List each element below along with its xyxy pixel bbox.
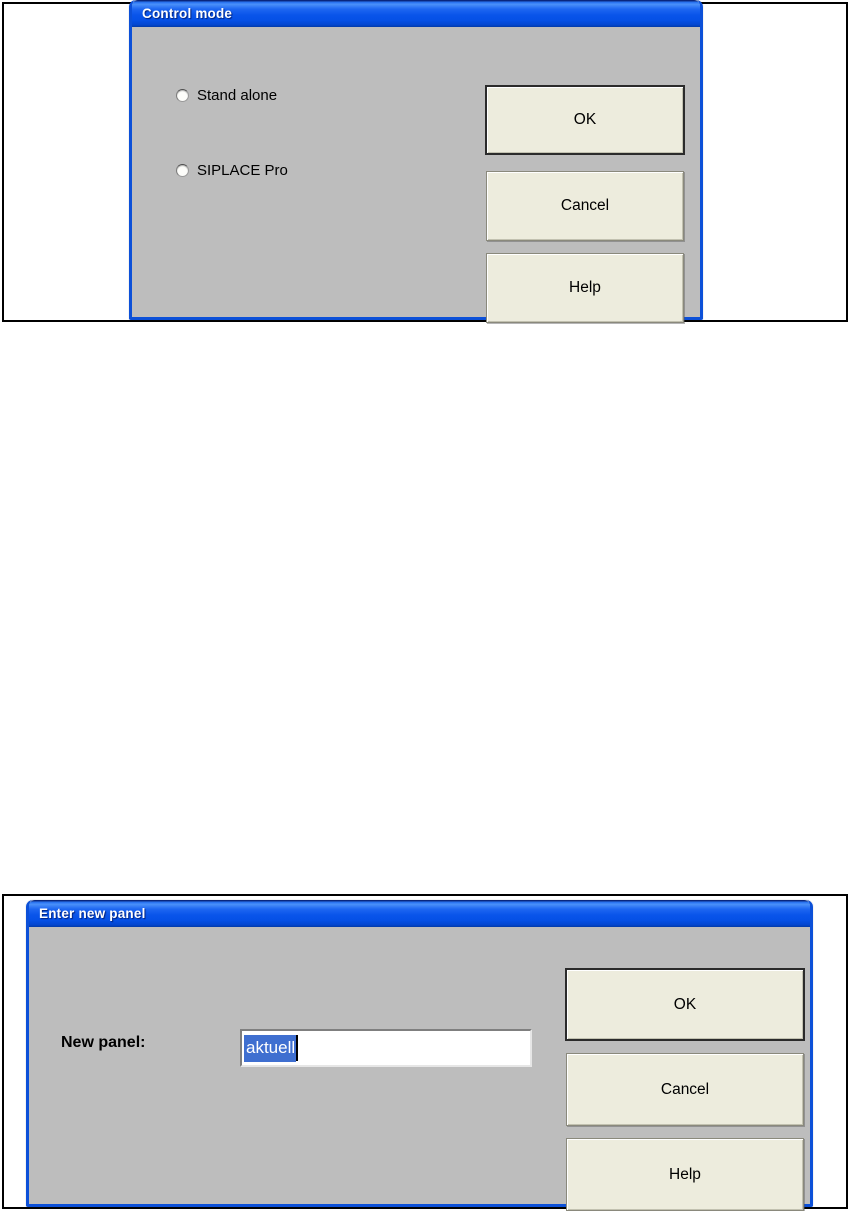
new-panel-input-selected-text: aktuell <box>244 1035 296 1062</box>
radio-icon[interactable] <box>176 89 189 102</box>
cancel-button[interactable]: Cancel <box>566 1053 804 1126</box>
ok-button[interactable]: OK <box>565 968 805 1041</box>
new-panel-label: New panel: <box>61 1034 145 1052</box>
radio-label-stand-alone[interactable]: Stand alone <box>197 87 277 104</box>
control-mode-dialog: Control mode Stand alone SIPLACE Pro OK … <box>129 0 703 320</box>
control-mode-titlebar[interactable]: Control mode <box>132 0 700 27</box>
radio-option-siplace-pro[interactable]: SIPLACE Pro <box>176 162 288 179</box>
help-button[interactable]: Help <box>486 253 684 323</box>
enter-new-panel-dialog: Enter new panel New panel: aktuell OK Ca… <box>26 900 813 1207</box>
page-background: Control mode Stand alone SIPLACE Pro OK … <box>0 0 850 1211</box>
ok-button[interactable]: OK <box>485 85 685 155</box>
text-caret <box>296 1035 298 1061</box>
help-button[interactable]: Help <box>566 1138 804 1211</box>
cancel-button[interactable]: Cancel <box>486 171 684 241</box>
new-panel-input[interactable]: aktuell <box>240 1029 532 1067</box>
enter-new-panel-titlebar[interactable]: Enter new panel <box>29 900 810 927</box>
radio-icon[interactable] <box>176 164 189 177</box>
control-mode-title: Control mode <box>142 6 232 21</box>
radio-label-siplace-pro[interactable]: SIPLACE Pro <box>197 162 288 179</box>
radio-option-stand-alone[interactable]: Stand alone <box>176 87 277 104</box>
enter-new-panel-title: Enter new panel <box>39 906 146 921</box>
